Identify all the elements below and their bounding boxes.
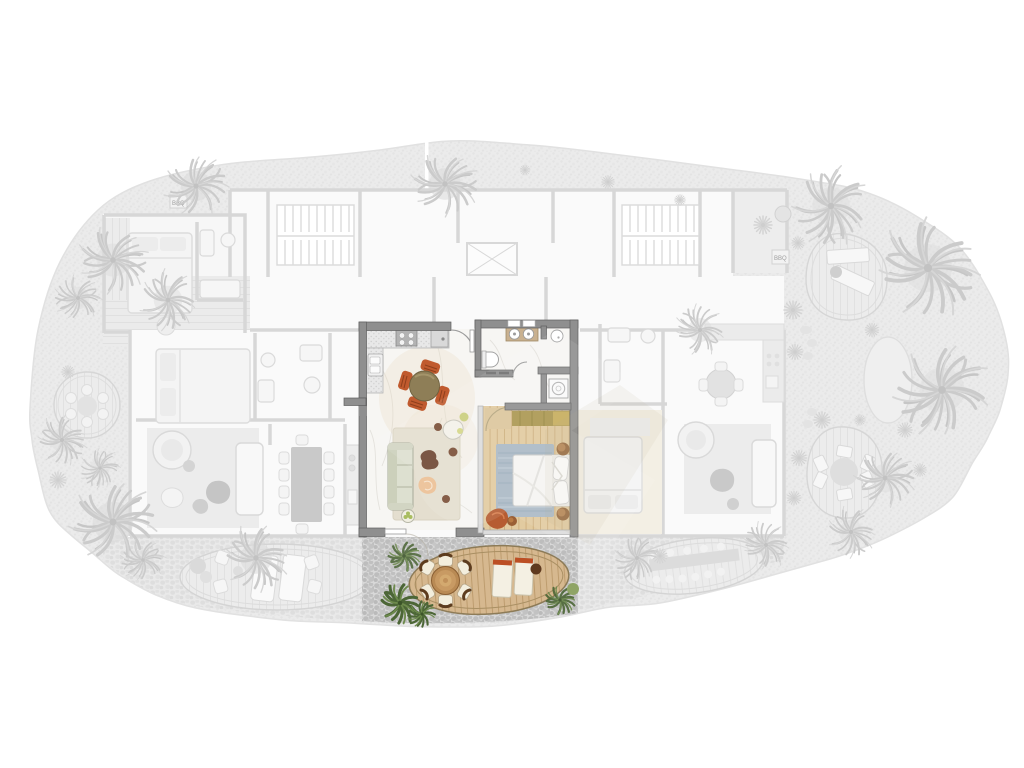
svg-text:BBQ: BBQ: [774, 256, 787, 262]
